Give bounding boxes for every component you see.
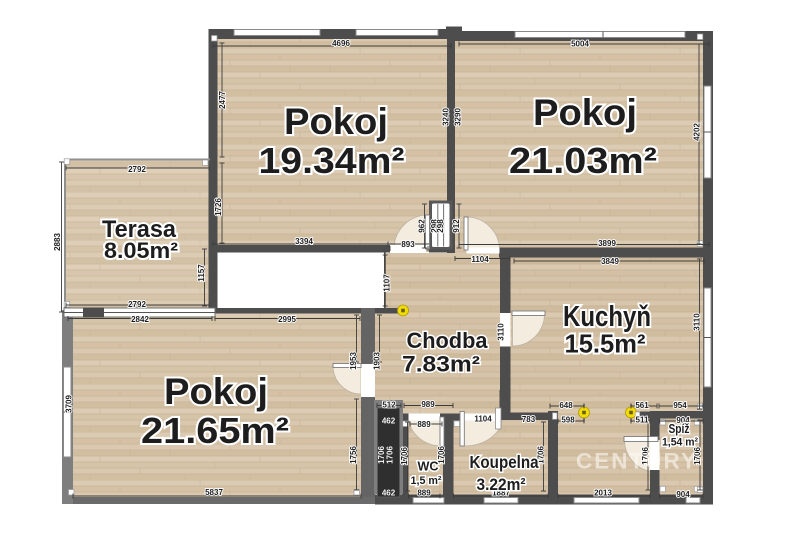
svg-text:1726: 1726 [214, 198, 223, 216]
svg-text:3110: 3110 [693, 313, 702, 331]
svg-text:4202: 4202 [693, 123, 702, 141]
svg-text:912: 912 [452, 219, 461, 233]
svg-text:3394: 3394 [295, 237, 313, 246]
svg-text:1,5 m²: 1,5 m² [411, 475, 442, 487]
svg-text:511: 511 [636, 416, 649, 425]
svg-text:648: 648 [559, 401, 573, 410]
svg-text:Pokoj: Pokoj [533, 92, 637, 133]
svg-text:893: 893 [401, 240, 415, 249]
svg-text:462: 462 [382, 489, 396, 498]
svg-text:512: 512 [382, 401, 396, 410]
svg-text:19.34m²: 19.34m² [259, 140, 405, 181]
svg-text:561: 561 [635, 401, 649, 410]
svg-text:2477: 2477 [218, 91, 227, 109]
svg-text:5004: 5004 [571, 40, 589, 49]
svg-text:Pokoj: Pokoj [164, 371, 268, 412]
svg-text:3240: 3240 [442, 108, 451, 126]
svg-text:1107: 1107 [383, 274, 392, 292]
svg-text:Spíž: Spíž [669, 421, 690, 436]
svg-text:889: 889 [417, 420, 431, 429]
svg-text:298: 298 [436, 219, 445, 233]
svg-text:954: 954 [673, 401, 687, 410]
svg-text:1706: 1706 [400, 447, 409, 465]
svg-text:904: 904 [676, 490, 690, 499]
svg-text:WC: WC [418, 459, 440, 474]
svg-text:462: 462 [382, 417, 396, 426]
svg-text:1706: 1706 [386, 446, 395, 464]
svg-text:1104: 1104 [474, 415, 492, 424]
svg-text:1903: 1903 [373, 352, 382, 370]
svg-text:21.65m²: 21.65m² [141, 410, 289, 451]
svg-text:15.5m²: 15.5m² [565, 329, 646, 359]
svg-text:783: 783 [522, 415, 536, 424]
svg-text:1,54 m²: 1,54 m² [662, 437, 698, 449]
svg-text:8.05m²: 8.05m² [104, 238, 178, 263]
svg-text:598: 598 [561, 416, 575, 425]
svg-text:3110: 3110 [497, 323, 506, 341]
svg-text:3.22m²: 3.22m² [477, 475, 526, 494]
svg-text:2792: 2792 [128, 165, 146, 174]
svg-text:5837: 5837 [205, 488, 223, 497]
svg-text:1953: 1953 [349, 352, 358, 370]
svg-text:1104: 1104 [471, 255, 489, 264]
svg-text:Chodba: Chodba [407, 328, 489, 353]
svg-text:2792: 2792 [128, 300, 146, 309]
svg-text:Pokoj: Pokoj [284, 101, 388, 142]
svg-text:1756: 1756 [349, 446, 358, 464]
svg-text:21.03m²: 21.03m² [509, 140, 657, 181]
svg-text:1157: 1157 [197, 264, 206, 282]
svg-text:CENTURY: CENTURY [576, 449, 696, 474]
svg-text:962: 962 [418, 219, 427, 233]
svg-text:889: 889 [417, 489, 431, 498]
svg-text:7.83m²: 7.83m² [402, 352, 480, 377]
svg-text:2842: 2842 [131, 315, 149, 324]
svg-text:3709: 3709 [65, 395, 74, 413]
svg-text:2883: 2883 [53, 233, 62, 251]
svg-text:3849: 3849 [601, 257, 619, 266]
svg-text:3899: 3899 [598, 239, 616, 248]
svg-text:2995: 2995 [278, 315, 296, 324]
svg-text:4696: 4696 [332, 39, 350, 48]
svg-text:989: 989 [421, 400, 435, 409]
svg-text:3290: 3290 [454, 108, 463, 126]
svg-text:Koupelna: Koupelna [470, 452, 539, 472]
svg-text:2013: 2013 [594, 489, 612, 498]
